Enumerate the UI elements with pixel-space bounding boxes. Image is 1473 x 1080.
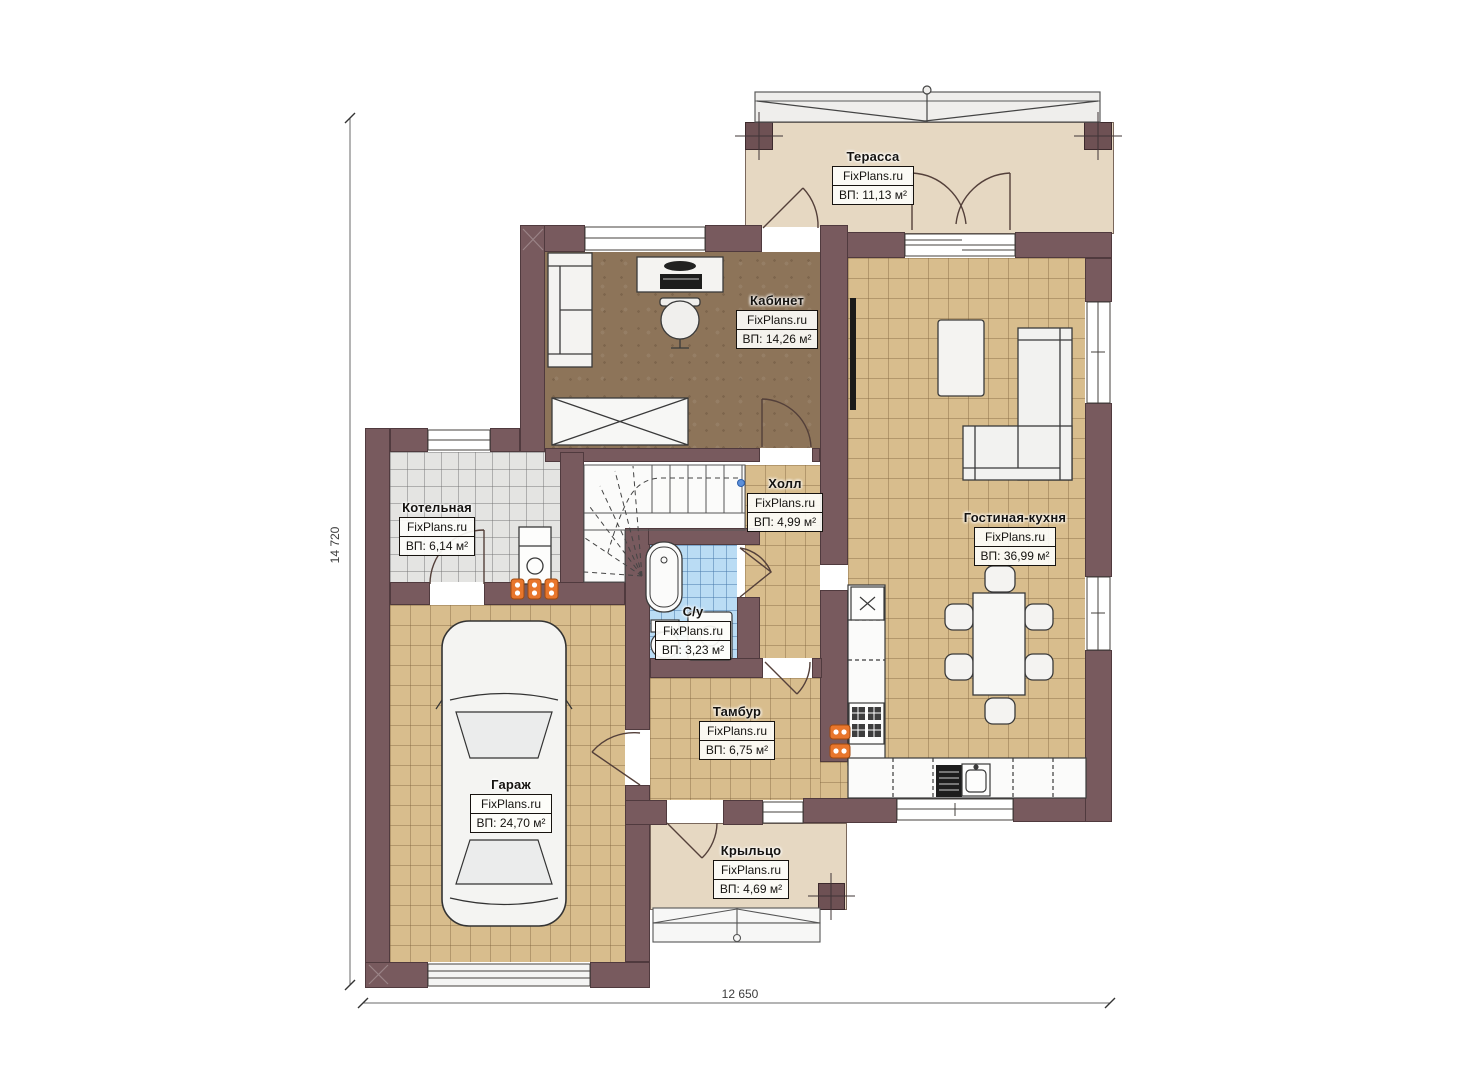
office-chair [660, 298, 700, 348]
room-name: Холл [724, 476, 846, 491]
dining-chair [985, 566, 1015, 592]
dining-chair [945, 604, 973, 630]
watermark: FixPlans.ru [737, 311, 818, 330]
terrace-roof-truss [755, 86, 1100, 122]
room-name: Котельная [375, 500, 499, 515]
room-label-living: Гостиная-кухня FixPlans.ru ВП: 36,99 м² [940, 510, 1090, 566]
door-bathroom [740, 548, 771, 597]
watermark: FixPlans.ru [714, 861, 788, 880]
office-wardrobe [552, 398, 688, 445]
room-label-bathroom: С/у FixPlans.ru ВП: 3,23 м² [633, 604, 753, 660]
room-label-office: Кабинет FixPlans.ru ВП: 14,26 м² [713, 293, 841, 349]
dimension-width: 12 650 [710, 987, 770, 1001]
watermark: FixPlans.ru [975, 528, 1056, 547]
door-office-hall [762, 399, 811, 447]
room-area: ВП: 4,99 м² [748, 513, 822, 531]
room-label-terrace: Терасса FixPlans.ru ВП: 11,13 м² [808, 149, 938, 205]
room-name: Терасса [808, 149, 938, 164]
office-terrace-opening [762, 227, 820, 250]
dishwasher [936, 765, 962, 797]
tv-panel [850, 298, 856, 410]
room-label-vestibule: Тамбур FixPlans.ru ВП: 6,75 м² [676, 704, 798, 760]
kitchen-bottom-window [897, 799, 1013, 820]
radiator [511, 579, 558, 599]
dining-chair [1025, 654, 1053, 680]
room-area: ВП: 6,14 м² [400, 537, 474, 555]
door-terrace-right-leaf [956, 173, 1010, 230]
room-area: ВП: 36,99 м² [975, 547, 1056, 565]
room-name: Крыльцо [688, 843, 814, 858]
bathtub [646, 542, 682, 612]
living-right-window-1 [1087, 302, 1110, 403]
living-right-window-2 [1087, 577, 1110, 650]
watermark: FixPlans.ru [400, 518, 474, 537]
room-name: Гараж [446, 777, 576, 792]
room-label-porch: Крыльцо FixPlans.ru ВП: 4,69 м² [688, 843, 814, 899]
garage-door [428, 964, 590, 986]
plan-linework [0, 0, 1473, 1080]
desk-lamp [664, 261, 696, 271]
fridge [851, 587, 884, 620]
dimension-height: 14 720 [328, 522, 342, 568]
room-area: ВП: 24,70 м² [471, 814, 552, 832]
room-label-boiler: Котельная FixPlans.ru ВП: 6,14 м² [375, 500, 499, 556]
room-area: ВП: 3,23 м² [656, 641, 730, 659]
vestibule-bottom-window [763, 802, 803, 823]
desk-computer [660, 274, 702, 289]
dining-chair [945, 654, 973, 680]
dining-set [945, 566, 1053, 724]
car [436, 621, 572, 926]
room-name: Гостиная-кухня [940, 510, 1090, 525]
watermark: FixPlans.ru [656, 622, 730, 641]
office-hall-opening [760, 448, 812, 462]
boiler-window [428, 430, 490, 450]
terrace-sliding-door [905, 234, 1015, 256]
boiler-door-opening [430, 584, 484, 603]
garage-vest-opening [627, 730, 648, 785]
dining-chair [985, 698, 1015, 724]
room-area: ВП: 6,75 м² [700, 741, 774, 759]
office-sofa [548, 253, 592, 367]
watermark: FixPlans.ru [700, 722, 774, 741]
room-area: ВП: 14,26 м² [737, 330, 818, 348]
porch-steps [653, 908, 820, 942]
coffee-table [938, 320, 984, 396]
room-label-garage: Гараж FixPlans.ru ВП: 24,70 м² [446, 777, 576, 833]
stove [849, 703, 884, 744]
room-name: Кабинет [713, 293, 841, 308]
watermark: FixPlans.ru [833, 167, 913, 186]
room-name: С/у [633, 604, 753, 619]
radiator [830, 725, 850, 758]
entrance-opening [667, 802, 723, 823]
watermark: FixPlans.ru [471, 795, 552, 814]
office-top-window [585, 227, 705, 250]
room-label-hall: Холл FixPlans.ru ВП: 4,99 м² [724, 476, 846, 532]
room-area: ВП: 4,69 м² [714, 880, 788, 898]
kitchen-sink [962, 764, 990, 796]
dining-chair [1025, 604, 1053, 630]
floor-plan-canvas: Терасса FixPlans.ru ВП: 11,13 м² Кабинет… [0, 0, 1473, 1080]
room-name: Тамбур [676, 704, 798, 719]
boiler-unit [519, 527, 551, 584]
room-area: ВП: 11,13 м² [833, 186, 913, 204]
office-desk [637, 257, 723, 292]
watermark: FixPlans.ru [748, 494, 822, 513]
dining-table [973, 593, 1025, 695]
